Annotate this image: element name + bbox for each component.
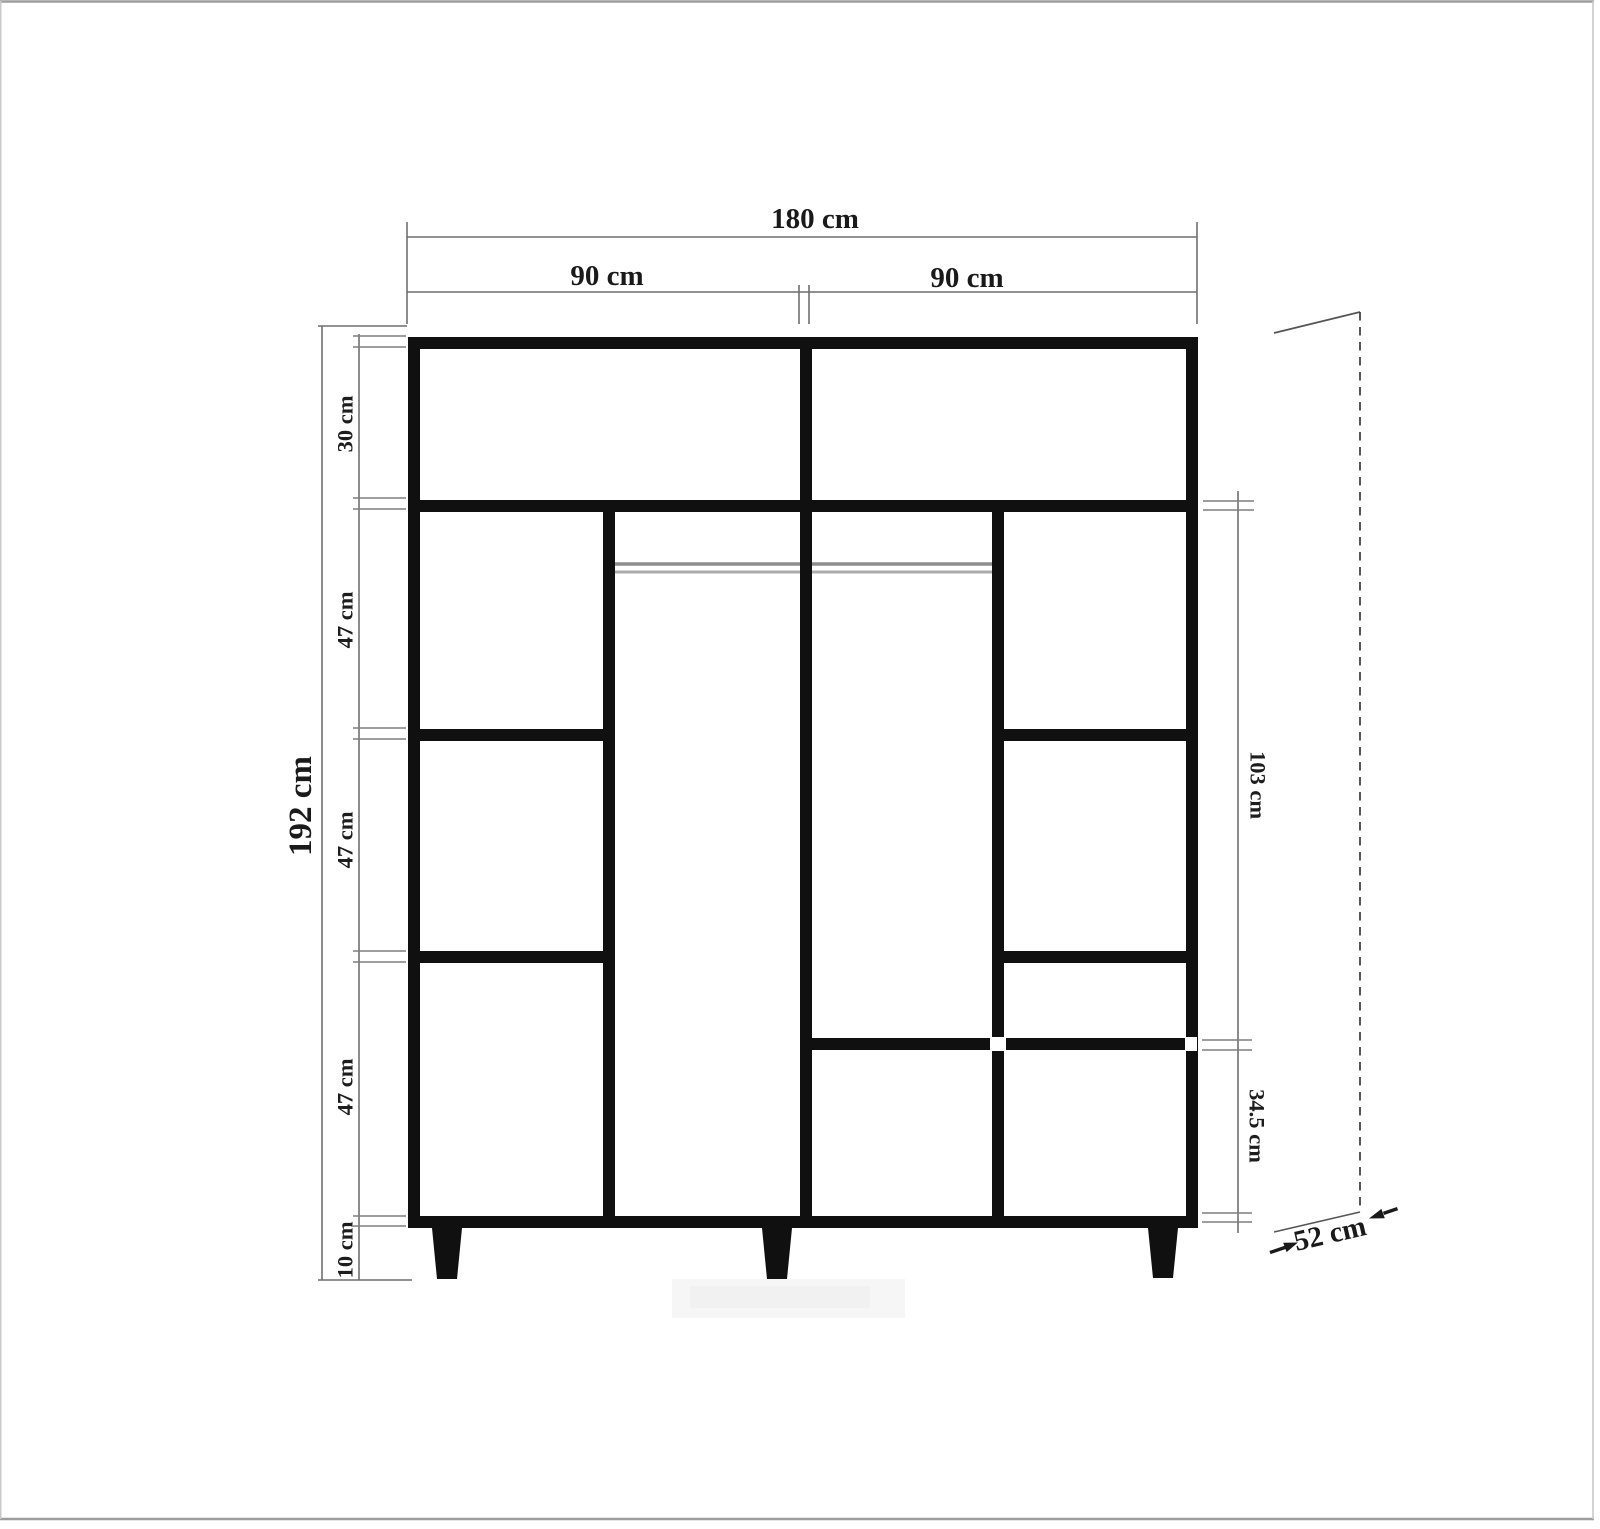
svg-text:103 cm: 103 cm xyxy=(1246,751,1271,819)
svg-text:52 cm: 52 cm xyxy=(1291,1210,1370,1258)
svg-text:192 cm: 192 cm xyxy=(283,756,319,856)
svg-text:47 cm: 47 cm xyxy=(333,1058,358,1115)
svg-text:34.5 cm: 34.5 cm xyxy=(1245,1089,1270,1163)
svg-text:47 cm: 47 cm xyxy=(333,591,358,648)
svg-text:180 cm: 180 cm xyxy=(771,203,859,235)
svg-text:90 cm: 90 cm xyxy=(570,260,643,292)
svg-text:47 cm: 47 cm xyxy=(333,811,358,868)
svg-text:90 cm: 90 cm xyxy=(930,262,1003,294)
svg-text:10 cm: 10 cm xyxy=(333,1221,358,1278)
svg-text:30 cm: 30 cm xyxy=(333,395,358,452)
